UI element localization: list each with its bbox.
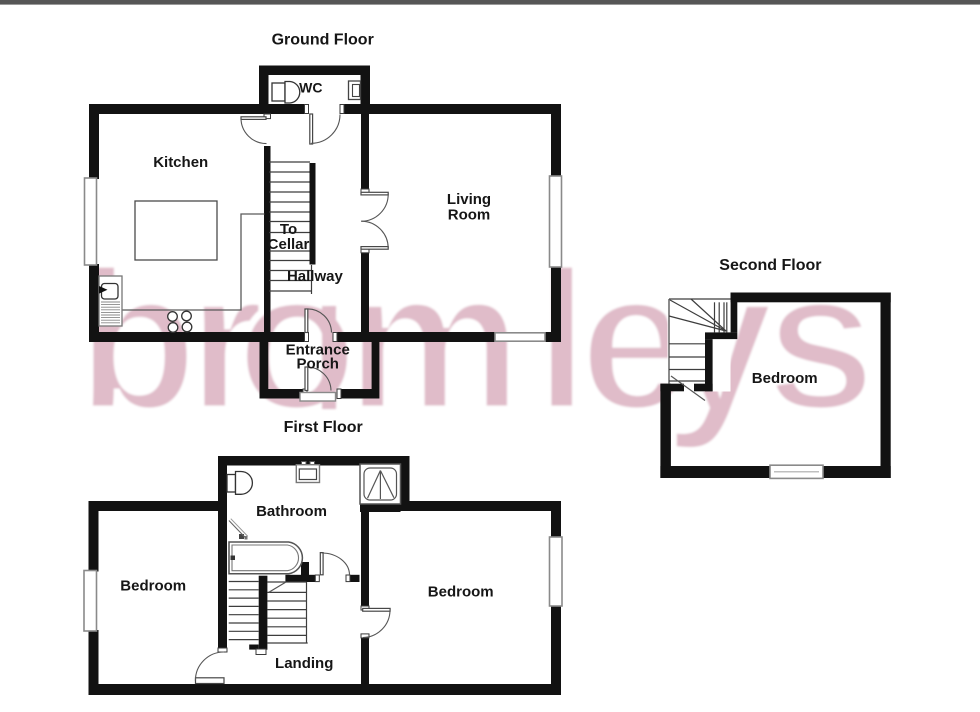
svg-text:Bedroom: Bedroom [428, 584, 494, 601]
svg-text:First Floor: First Floor [284, 419, 363, 436]
svg-text:Porch: Porch [296, 356, 339, 373]
svg-text:Room: Room [448, 207, 491, 224]
svg-text:Living: Living [447, 191, 491, 208]
svg-text:Ground Floor: Ground Floor [272, 32, 374, 49]
svg-text:Bedroom: Bedroom [120, 578, 186, 595]
svg-text:Bathroom: Bathroom [256, 503, 327, 520]
svg-text:Hallway: Hallway [287, 268, 344, 285]
svg-text:Bedroom: Bedroom [752, 370, 818, 387]
svg-text:WC: WC [299, 80, 322, 96]
svg-text:Cellar: Cellar [268, 236, 310, 253]
svg-text:Landing: Landing [275, 655, 333, 672]
svg-text:Kitchen: Kitchen [153, 154, 208, 171]
svg-text:Second Floor: Second Floor [719, 257, 821, 274]
